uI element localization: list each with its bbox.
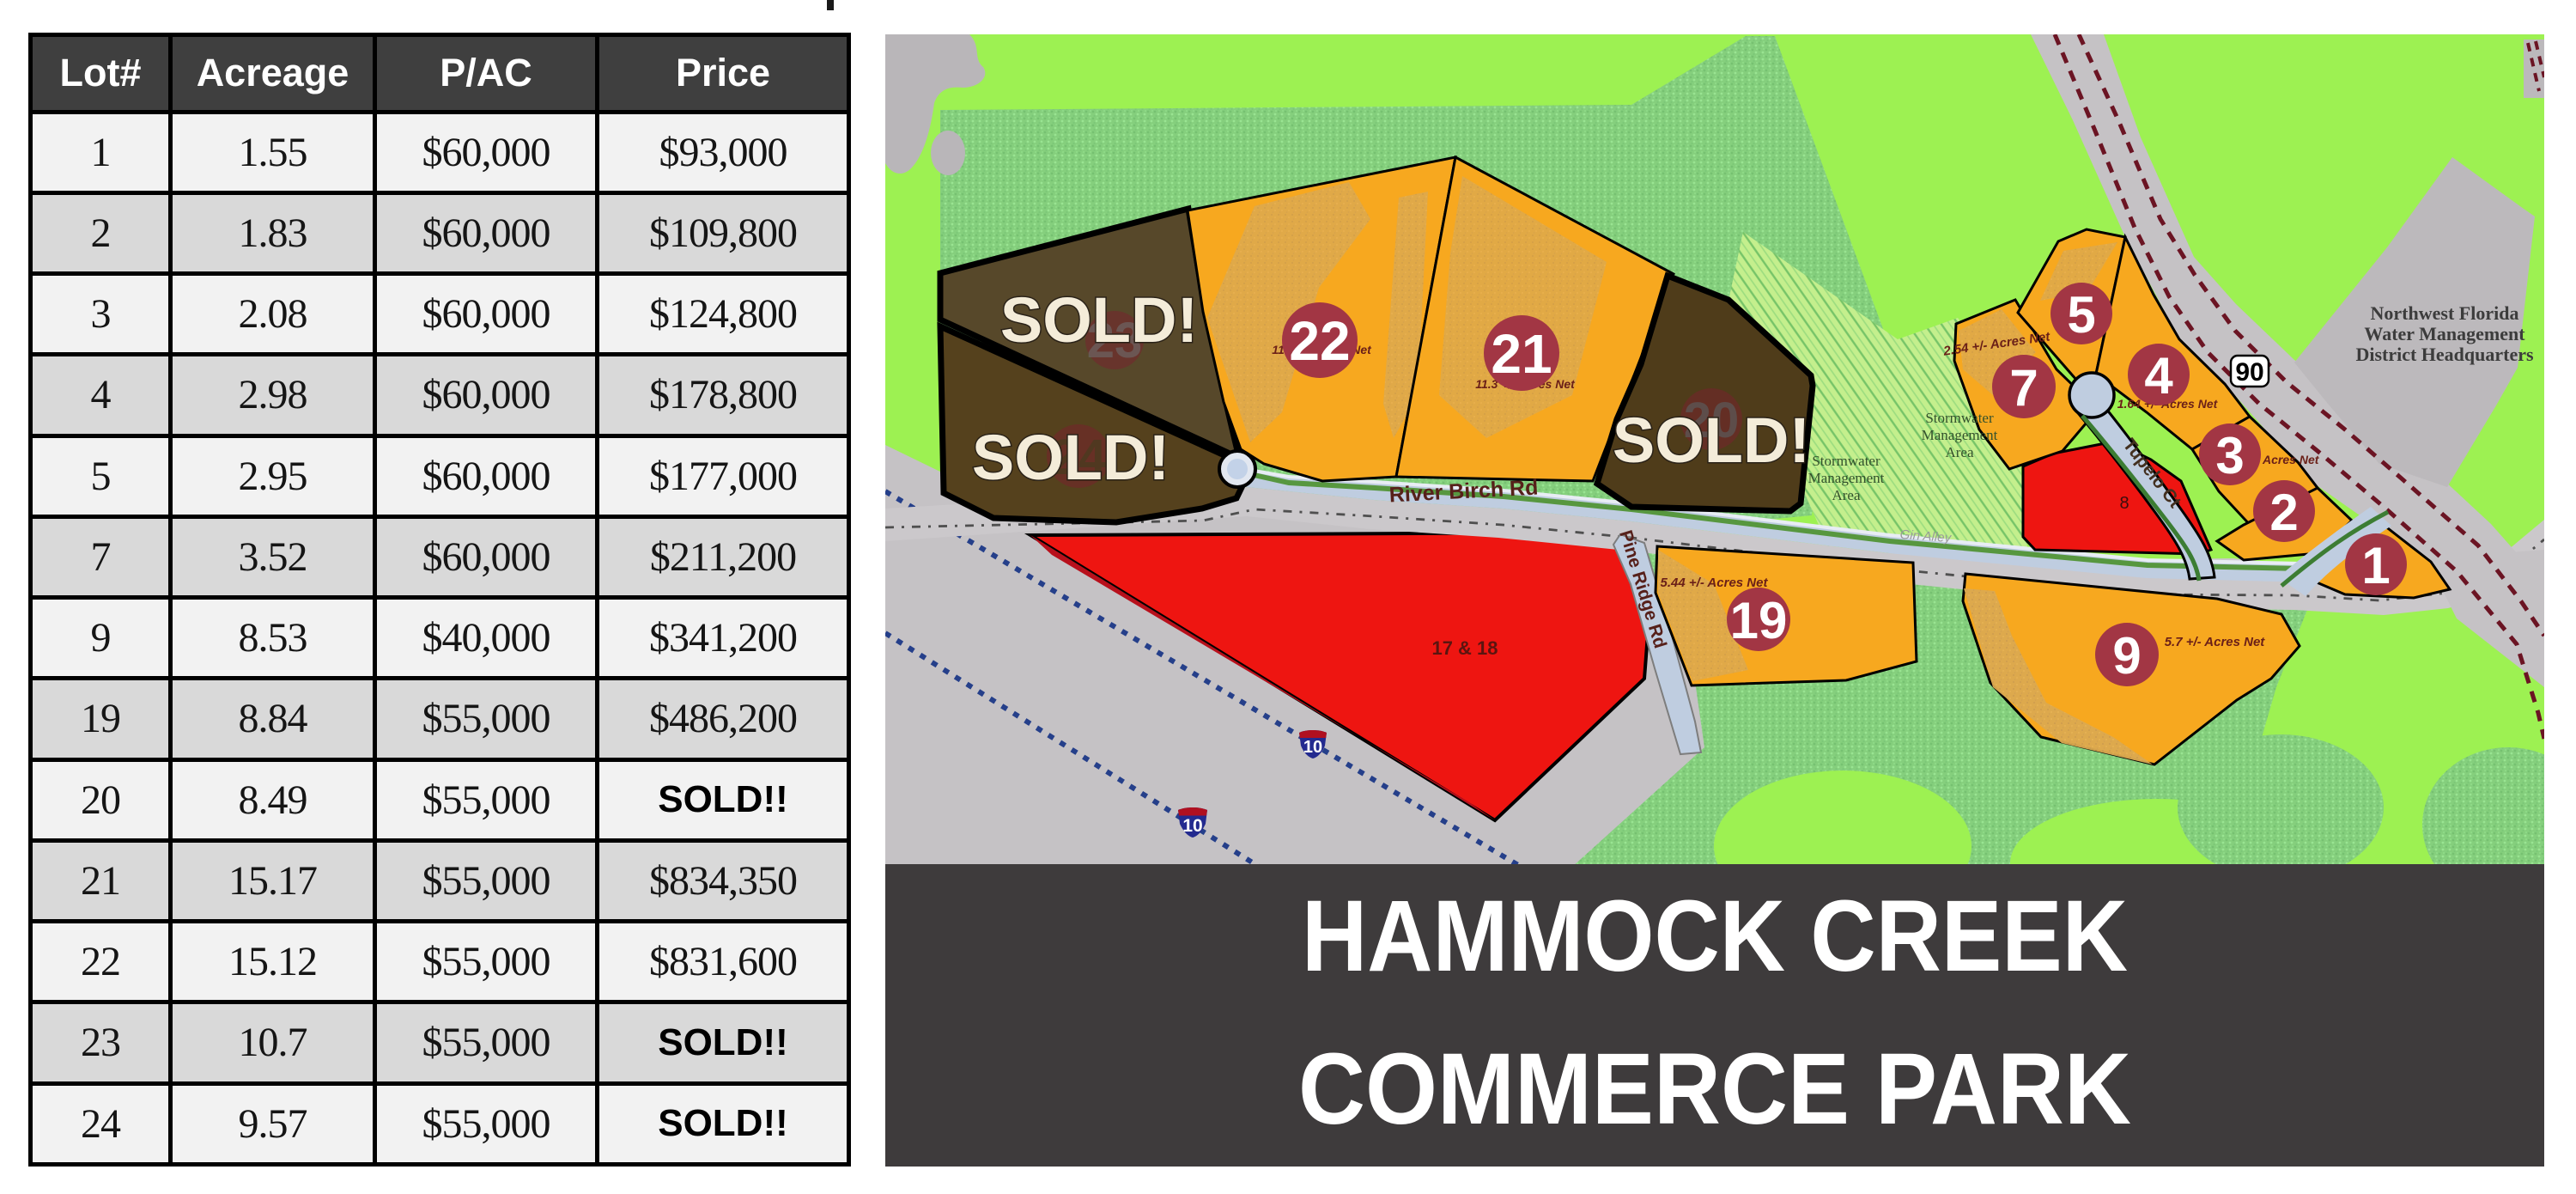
svg-text:10: 10 xyxy=(1303,738,1322,757)
svg-text:19: 19 xyxy=(1730,592,1788,649)
svg-text:5: 5 xyxy=(2067,286,2095,344)
svg-text:SOLD!: SOLD! xyxy=(1000,284,1198,356)
svg-text:8: 8 xyxy=(2119,494,2129,513)
svg-text:5.44 +/- Acres Net: 5.44 +/- Acres Net xyxy=(1661,576,1769,590)
svg-text:5.7 +/- Acres Net: 5.7 +/- Acres Net xyxy=(2165,635,2266,649)
svg-text:Northwest FloridaWater Managem: Northwest FloridaWater ManagementDistric… xyxy=(2355,302,2534,365)
svg-text:SOLD!: SOLD! xyxy=(972,422,1170,493)
svg-text:7: 7 xyxy=(2009,359,2038,417)
svg-text:4: 4 xyxy=(2144,347,2173,405)
svg-text:SOLD!: SOLD! xyxy=(1613,405,1810,476)
svg-text:1: 1 xyxy=(2361,537,2390,594)
svg-text:3: 3 xyxy=(2215,427,2244,484)
svg-text:90: 90 xyxy=(2235,358,2263,387)
svg-text:22: 22 xyxy=(1289,310,1350,372)
svg-text:17 & 18: 17 & 18 xyxy=(1431,637,1498,659)
svg-text:HAMMOCK CREEK: HAMMOCK CREEK xyxy=(1302,880,2128,993)
svg-text:COMMERCE PARK: COMMERCE PARK xyxy=(1298,1033,2131,1146)
svg-text:9: 9 xyxy=(2112,627,2141,685)
svg-text:2: 2 xyxy=(2269,484,2298,541)
svg-text:21: 21 xyxy=(1491,323,1552,385)
svg-text:10: 10 xyxy=(1182,816,1202,836)
